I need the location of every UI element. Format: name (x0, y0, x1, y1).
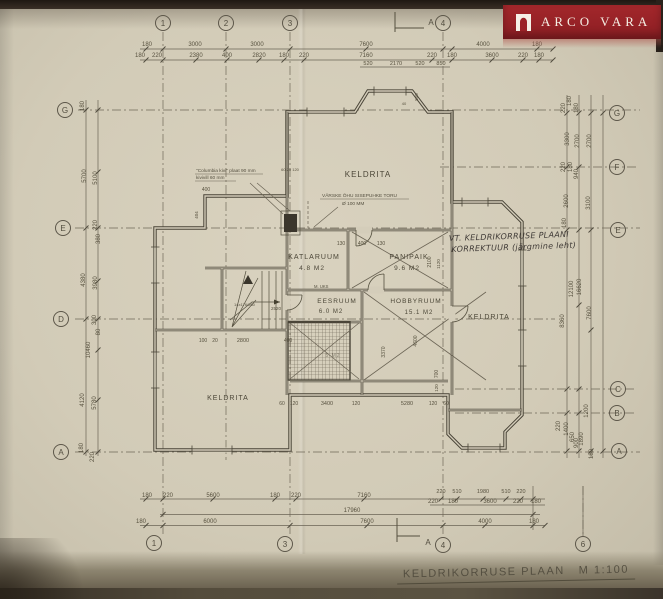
grid-bubble-label: 4 (441, 19, 446, 28)
grid-bubble-label: 4 (441, 541, 446, 550)
grid-bubble: 3 (283, 16, 298, 31)
dimension-label: 400 (358, 241, 367, 247)
room-label-hobbyruum: HOBBYRUUM (390, 298, 441, 305)
dimension-label: 4000 (476, 42, 490, 48)
dimension-label: 5100 (93, 171, 99, 185)
dimension-label: 220 (299, 53, 310, 59)
dimension-label: 120 (352, 401, 361, 407)
dimension-label: 3600 (483, 499, 497, 505)
window (468, 444, 500, 453)
grid-bubble: 3 (278, 537, 293, 552)
logo-reflection (503, 39, 661, 48)
dimension-label: 520 (363, 61, 372, 67)
room-label-keldrita-top: KELDRITA (345, 170, 392, 179)
grid-bubble-label: 3 (283, 540, 288, 549)
dimension-label: 220 (93, 219, 99, 230)
window (374, 87, 406, 96)
dimension-label: 3980 (93, 276, 99, 290)
dimension-label: 400 (284, 338, 293, 344)
grid-bubble-label: 1 (161, 19, 166, 28)
grid-bubble-label: A (616, 447, 622, 456)
dimension-label: 220 (427, 53, 438, 59)
dimension-label: 220 (90, 451, 96, 462)
grid-bubble: E (56, 221, 71, 236)
dimension-label: 850 (436, 61, 445, 67)
dimension-label: 5600 (206, 493, 220, 499)
dimension-label: 130 (377, 241, 386, 247)
grid-bubble: A (612, 444, 627, 459)
dimension-label: 180 (135, 53, 146, 59)
dimension-label: 180 (562, 217, 568, 228)
grid-bubble: 1 (156, 16, 171, 31)
grid-bubble: 1 (147, 536, 162, 551)
drawing-scale: M 1:100 (579, 564, 629, 577)
window (518, 330, 527, 366)
dimension-label: 220 (513, 499, 524, 505)
dimension-label: 2700 (587, 134, 593, 148)
grid-bubble-label: F (615, 163, 620, 172)
room-area-katlaruum: 4.8 M2 (299, 265, 325, 272)
section-marker-label: A (425, 538, 431, 547)
dimension-label: 380 (96, 233, 102, 244)
grid-bubble-label: G (62, 106, 68, 115)
dimension-label: 510 (501, 489, 510, 495)
grid-bubble: 6 (576, 537, 591, 552)
dimension-label: 3000 (188, 42, 202, 48)
room-area-hobbyruum: 15.1 M2 (405, 310, 434, 316)
dimension-label: 2700 (575, 134, 581, 148)
section-marker-label: A (428, 18, 434, 27)
dimension-label: 180 (529, 519, 540, 525)
dimension-label: 400 (202, 187, 211, 193)
note-vent-line1: VÄRSKE ÕHU SISEPUHKE TORU (322, 192, 398, 199)
room-label-keldrita-left: KELDRITA (207, 395, 249, 402)
dimension-label: 220 (561, 161, 567, 172)
dimension-label: 180 (79, 442, 85, 453)
grid-bubble-label: C (615, 385, 621, 394)
room-label-panipaik: PANIPAIK (389, 254, 428, 261)
dimension-label: 5780 (92, 396, 98, 410)
leader-lines (195, 174, 409, 228)
dimension-label: 7160 (357, 493, 371, 499)
room-label-eesruum: EESRUUM (317, 298, 357, 305)
dimension-label: 180 (270, 493, 281, 499)
arco-vara-logo: ARCO VARA (503, 5, 661, 39)
dimension-label: 3370 (381, 346, 387, 357)
dimension-label: 220 (428, 499, 439, 505)
dimension-label: 3400 (321, 401, 333, 407)
window (462, 198, 488, 207)
section-marker-top: A (395, 12, 434, 32)
dimension-label: 2170 (390, 61, 402, 67)
window (518, 250, 527, 286)
drawing-title-text: KELDRIKORRUSE PLAAN (403, 565, 565, 580)
dimension-label: 12100 (569, 280, 575, 297)
grid-bubble: 4 (436, 16, 451, 31)
note-door-label: M. UKS (314, 284, 329, 289)
grid-bubble-label: D (58, 315, 64, 324)
grid-bubble-label: B (614, 409, 619, 418)
stairs (230, 271, 282, 329)
photo-corner-dark-bl (0, 538, 100, 599)
dimension-label: 4000 (478, 519, 492, 525)
dimension-label: 220 (152, 53, 163, 59)
room-label-katlaruum: KATLARUUM (288, 254, 340, 261)
dimension-label: 2820 (252, 53, 266, 59)
dimension-label: 180 (136, 519, 147, 525)
window (307, 108, 344, 117)
section-marker-bottom: A (397, 518, 431, 547)
dimension-label: 80 (96, 328, 102, 335)
dimension-label: 220 (516, 489, 525, 495)
dimension-label: 180 (589, 448, 595, 459)
dimension-label: 400 (222, 53, 233, 59)
dimension-label: 1980 (477, 489, 489, 495)
dimension-label: 100 (199, 338, 208, 344)
photo-of-floor-plan: 1 2 3 4 1 3 4 6 G E D A G F E C B A A (0, 0, 663, 599)
handwritten-note: VT. KELDRIKORRUSE PLAANI KORREKTUUR (jär… (449, 230, 577, 254)
dimension-label: 7600 (359, 42, 373, 48)
grid-bubble: A (54, 445, 69, 460)
dimension-label: 3600 (485, 53, 499, 59)
dimension-label: 180 (531, 499, 542, 505)
dimension-label: 180 (80, 100, 86, 111)
dimension-label: 5700 (82, 169, 88, 183)
dimension-label: 3300 (565, 132, 571, 146)
dimension-label: 510 (452, 489, 461, 495)
dimension-label: 220 (291, 493, 302, 499)
dimension-label: 4600 (413, 335, 419, 346)
grid-bubble-label: A (58, 448, 64, 457)
dimension-label: 1120 (436, 259, 441, 269)
grid-bubble: 2 (219, 16, 234, 31)
grid-bubble-label: 2 (224, 19, 229, 28)
dimension-label: 7160 (359, 53, 373, 59)
dimension-label: 5280 (401, 401, 413, 407)
dimension-label: 1890 (579, 432, 585, 446)
dimension-label: 8360 (560, 314, 566, 328)
dimension-label: 4380 (81, 273, 87, 287)
dimension-label: 180 (534, 53, 545, 59)
grid-bubble-label: 6 (581, 540, 586, 549)
note-insulation-line2: kivivill 60 mm (196, 175, 225, 181)
dimension-label: 120 (429, 401, 438, 407)
dimension-label: 60 (279, 401, 285, 407)
dimension-label: 2380 (189, 53, 203, 59)
dimension-label: 520 (415, 61, 424, 67)
dimension-label: 17960 (344, 508, 361, 514)
grid-bubble-label: 3 (288, 19, 293, 28)
dimension-label: 7600 (587, 306, 593, 320)
grid-bubble: D (54, 312, 69, 327)
room-label-keldrita-right: KELDRITA (468, 314, 510, 321)
arch-icon (516, 14, 531, 31)
dimension-label: 2800 (237, 338, 249, 344)
dimension-label: 20 (212, 338, 218, 344)
dimension-label: 120 (290, 401, 299, 407)
grid-bubble: G (610, 106, 625, 121)
dimension-label: 120 (434, 384, 439, 392)
dimension-label: 3000 (250, 42, 264, 48)
shaft-hatch (288, 322, 350, 380)
dimension-ticks (84, 47, 606, 529)
dimension-label: 2520 (271, 306, 282, 311)
grid-bubble-label: E (615, 226, 620, 235)
dimension-label: 180 (142, 42, 153, 48)
dimension-label: 2100 (427, 256, 433, 267)
dimension-label: 60 (443, 401, 449, 407)
window (151, 352, 160, 388)
dimension-label: 6000 (203, 519, 217, 525)
window (151, 247, 160, 283)
dimension-label: 7600 (360, 519, 374, 525)
grid-bubble-label: 1 (152, 539, 157, 548)
dimension-label: 180 (279, 53, 290, 59)
dimension-label: 10460 (86, 341, 92, 358)
note-vent-line2: Ø 100 MM (342, 201, 364, 207)
dimension-label: 3100 (586, 196, 592, 210)
dimension-label: 4120 (80, 393, 86, 407)
grid-bubble: G (58, 103, 73, 118)
dimension-label: 2600 (564, 194, 570, 208)
dimension-label: 404 (194, 211, 199, 219)
dimension-label: 700 (434, 370, 440, 379)
logo-brand-text: ARCO VARA (541, 14, 651, 30)
dimension-label: 60 20 120 (281, 167, 300, 172)
grid-bubble: E (611, 223, 626, 238)
dimension-label: 220 (163, 493, 174, 499)
dimension-label: 220 (556, 420, 562, 431)
dimension-label: 300 (92, 314, 98, 325)
dimension-label: 180 (574, 102, 580, 113)
dimension-label: 40 (402, 101, 407, 106)
dimension-label: 180 (448, 499, 459, 505)
boiler-symbol (281, 211, 300, 235)
dimension-label: 540 (414, 93, 419, 101)
dimension-label: 180 (567, 95, 573, 106)
grid-bubbles: 1 2 3 4 1 3 4 6 G E D A G F E C B A (54, 16, 627, 553)
floor-plan-drawing: 1 2 3 4 1 3 4 6 G E D A G F E C B A A (0, 0, 663, 599)
handwritten-line2: KORREKTUUR (järgmine leht) (451, 241, 576, 254)
dimension-label: 16620 (577, 278, 583, 295)
room-area-eesruum: 6.0 M2 (319, 309, 343, 315)
dimension-label: 220 (518, 53, 529, 59)
dimension-label: 180 (142, 493, 153, 499)
room-area-shaft: 5 M2 (325, 353, 340, 359)
dimension-label: 180 (447, 53, 458, 59)
dimension-label: 130 (337, 241, 346, 247)
dimension-label: 940 (574, 168, 580, 179)
dimension-label: 1200 (584, 404, 590, 418)
grid-bubble-label: E (60, 224, 65, 233)
dimension-label: 220 (561, 102, 567, 113)
note-stair-label: 14x176/260 (234, 302, 256, 307)
dimension-label: 220 (436, 489, 445, 495)
room-area-panipaik: 9.6 M2 (394, 265, 420, 272)
note-insulation-line1: "Columbia kivi" plaat 90 mm (196, 168, 256, 174)
grid-bubble-label: G (614, 109, 620, 118)
